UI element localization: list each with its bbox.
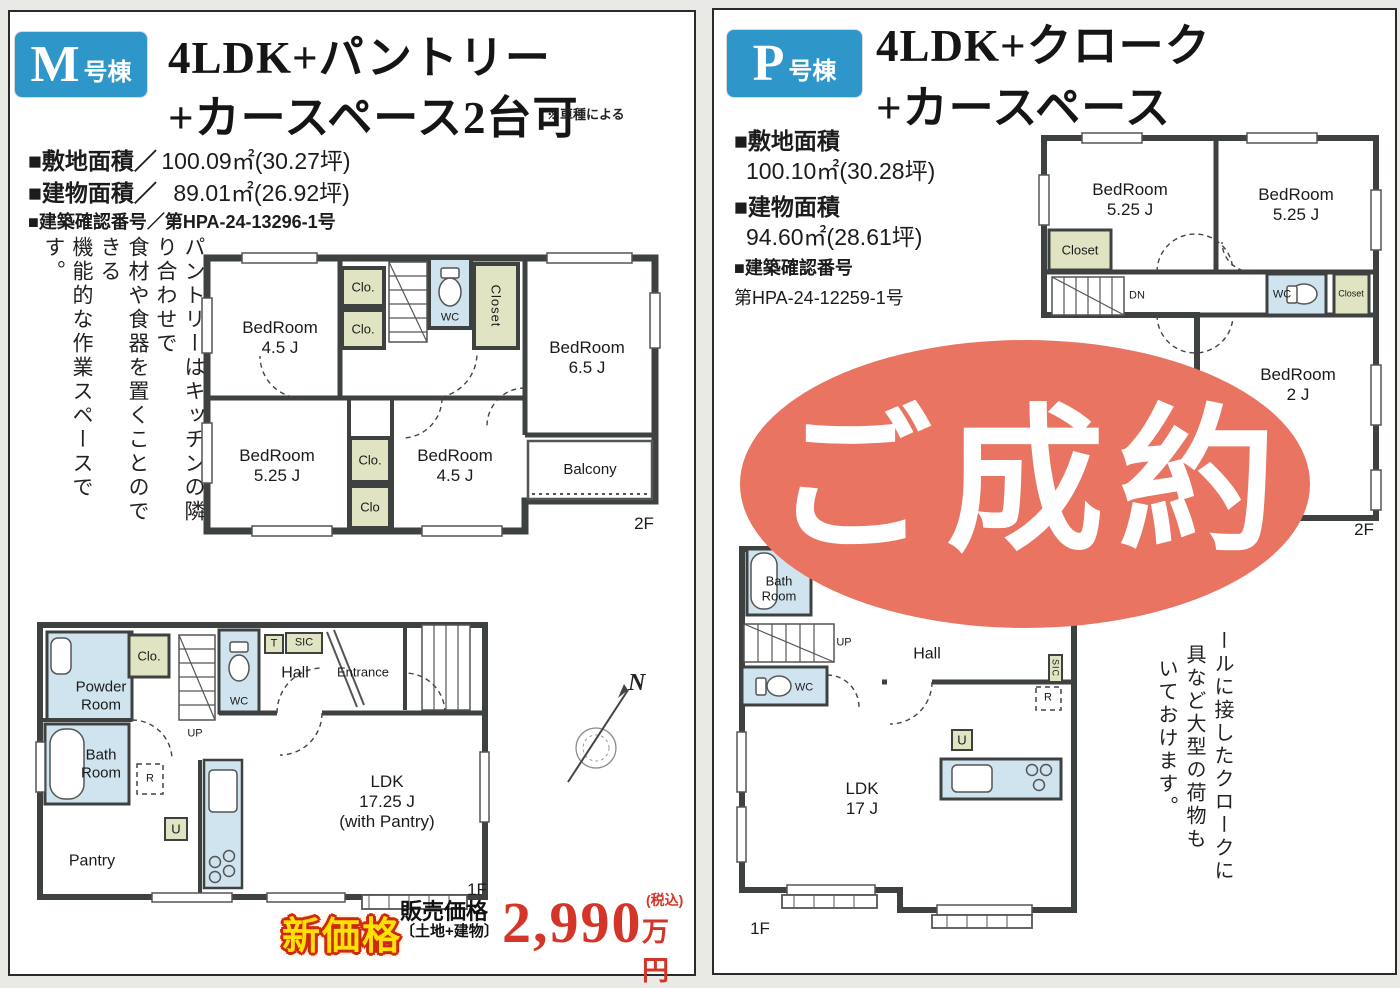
- room-label-balcony: Balcony: [563, 461, 616, 479]
- sic-label: SIC: [295, 637, 313, 650]
- vertical-text-col: 機能的な作業スペースです。: [40, 236, 96, 536]
- permit-number: ■建築確認番号／第HPA-24-13296-1号: [28, 212, 336, 232]
- price-caption: 販売価格 〔土地+建物〕: [400, 900, 499, 941]
- unit-m-badge: M 号棟: [15, 32, 147, 97]
- unit-p-badge: P 号棟: [727, 30, 862, 97]
- vertical-text-col: 食材や食器を置くことのできる: [96, 236, 152, 536]
- room-label-ldk: LDK 17.25 J (with Pantry): [339, 772, 434, 832]
- vertical-text-col: ールに接したクロークに: [1208, 630, 1236, 890]
- unit-suffix: 号棟: [84, 42, 132, 87]
- wc-room: [742, 667, 827, 705]
- room-label-closet: Closet: [488, 285, 503, 328]
- permit-row: ■建築確認番号／第HPA-24-13296-1号: [28, 208, 336, 234]
- unit-m-title-line1: 4LDK+パントリー: [168, 36, 551, 81]
- room-label-closet: Clo: [360, 499, 380, 514]
- site-area-value: 100.09㎡(30.27坪): [161, 148, 350, 174]
- floor-tag-2f: 2F: [1354, 520, 1374, 540]
- room-label-closet: Clo.: [137, 648, 160, 663]
- room-label-bath: Bath Room: [81, 746, 121, 781]
- sold-stamp: ご成約: [740, 340, 1310, 628]
- building-area-value: 89.01㎡(26.92坪): [161, 180, 349, 206]
- room-label-hall: Hall: [913, 646, 941, 665]
- room-label-closet: Clo.: [358, 452, 381, 467]
- u-label: U: [957, 732, 966, 747]
- bathtub-icon: [50, 729, 84, 799]
- building-area-label: ■建物面積／: [28, 180, 157, 206]
- room-label-wc: WC: [230, 696, 248, 709]
- stairs-up-label: UP: [187, 728, 202, 741]
- room-label-bedroom: BedRoom 4.5 J: [242, 318, 318, 358]
- building-area-row: ■建物面積: [734, 188, 840, 222]
- toilet-icon: [441, 268, 459, 278]
- stairs-down-label: DN: [1129, 290, 1145, 303]
- room-label-bedroom: BedRoom 5.25 J: [1258, 185, 1334, 225]
- toilet-icon: [229, 655, 249, 681]
- flyer-page: M 号棟 4LDK+パントリー +カースペース2台可 ※車種による ■敷地面積／…: [0, 0, 1400, 988]
- room-label-wc: WC: [1273, 289, 1291, 302]
- room-label-wc: WC: [795, 682, 813, 695]
- price-caption-line2: 〔土地+建物〕: [400, 924, 499, 941]
- compass-north-icon: N: [560, 662, 660, 792]
- unit-m-panel: M 号棟 4LDK+パントリー +カースペース2台可 ※車種による ■敷地面積／…: [8, 10, 696, 976]
- unit-letter: M: [30, 39, 79, 91]
- floor-plan-m-2f: BedRoom 4.5 J Clo. Clo. WC Closet BedRoo…: [192, 238, 657, 553]
- room-label-closet: Clo.: [351, 321, 374, 336]
- pantry-description-vertical-text: パントリーはキッチンの隣り合わせで 食材や食器を置くことのできる 機能的な作業ス…: [40, 236, 208, 536]
- room-label-powder: Powder Room: [76, 678, 127, 713]
- r-label: R: [1044, 692, 1052, 705]
- room-label-bedroom: BedRoom 4.5 J: [417, 446, 493, 486]
- compass-n-label: N: [628, 670, 645, 697]
- sold-stamp-text: ご成約: [760, 405, 1290, 563]
- new-price-badge: 新価格: [282, 905, 402, 960]
- unit-suffix: 号棟: [788, 41, 836, 86]
- room-label-bedroom: BedRoom 5.25 J: [1092, 180, 1168, 220]
- room-label-hall: Hall: [281, 665, 309, 684]
- room-label-bath: Bath Room: [762, 574, 797, 605]
- sink-icon: [952, 765, 992, 792]
- toilet-icon: [767, 676, 791, 696]
- room-label-closet: Clo.: [351, 279, 374, 294]
- sic-label: SIC: [1050, 659, 1061, 677]
- site-area-label: ■敷地面積: [734, 128, 840, 154]
- kitchen-counter: [204, 760, 242, 888]
- staircase: [389, 262, 427, 342]
- building-area-row: ■建物面積／ 89.01㎡(26.92坪): [28, 174, 350, 208]
- toilet-icon: [439, 278, 461, 306]
- u-label: U: [171, 821, 180, 836]
- permit-label: ■建築確認番号: [734, 258, 853, 278]
- staircase: [1052, 277, 1124, 315]
- t-label: T: [271, 638, 278, 651]
- floor-plan-m-2f-walls: [192, 238, 657, 553]
- room-label-bedroom: BedRoom 6.5 J: [549, 338, 625, 378]
- room-label-closet: Closet: [1338, 289, 1364, 300]
- unit-m-title-line2: +カースペース2台可: [168, 96, 579, 141]
- site-area-row: ■敷地面積／ 100.09㎡(30.27坪): [28, 142, 351, 176]
- porch-steps: [422, 625, 470, 710]
- room-label-pantry: Pantry: [69, 853, 115, 872]
- sink-icon: [209, 770, 237, 812]
- floor-plan-m-1f: Powder Room Clo. UP WC T SIC Hall Entran…: [37, 612, 492, 912]
- unit-p-panel: P 号棟 4LDK+クローク +カースペース ■敷地面積 100.10㎡(30.…: [712, 8, 1397, 975]
- floor-tag-2f: 2F: [634, 514, 654, 534]
- room-label-closet: Closet: [1062, 242, 1099, 257]
- vertical-text-col: いておけます。: [1152, 630, 1180, 890]
- site-area-label: ■敷地面積／: [28, 148, 157, 174]
- permit-value-row: 第HPA-24-12259-1号: [734, 284, 904, 310]
- staircase: [179, 635, 215, 720]
- room-label-entrance: Entrance: [337, 664, 389, 679]
- building-area-value-row: 94.60㎡(28.61坪): [746, 218, 922, 252]
- floor-tag-1f: 1F: [467, 880, 487, 900]
- kitchen-counter: [941, 759, 1061, 799]
- unit-letter: P: [753, 38, 785, 90]
- staircase: [744, 624, 834, 662]
- sink-icon: [51, 638, 71, 674]
- permit-number: 第HPA-24-12259-1号: [734, 288, 904, 308]
- r-label: R: [146, 773, 154, 786]
- cloak-description-vertical-text: ールに接したクロークに 具など大型の荷物も いておけます。: [1152, 630, 1236, 890]
- price-tax-note: (税込): [646, 890, 683, 910]
- toilet-icon: [756, 678, 766, 695]
- unit-p-title-line2: +カースペース: [876, 86, 1171, 131]
- room-label-wc: WC: [441, 312, 459, 325]
- site-area-row: ■敷地面積: [734, 122, 840, 156]
- permit-label-row: ■建築確認番号: [734, 254, 853, 280]
- unit-p-title-line1: 4LDK+クローク: [876, 24, 1211, 69]
- stairs-up-label: UP: [836, 637, 851, 650]
- site-area-value: 100.10㎡(30.28坪): [746, 158, 935, 184]
- building-area-value: 94.60㎡(28.61坪): [746, 224, 922, 250]
- floor-tag-1f: 1F: [750, 919, 770, 939]
- price-amount: 2,990: [502, 894, 643, 952]
- room-label-bedroom: BedRoom 5.25 J: [239, 446, 315, 486]
- building-area-label: ■建物面積: [734, 194, 840, 220]
- unit-m-title-note: ※車種による: [547, 104, 625, 123]
- toilet-icon: [230, 642, 248, 652]
- site-area-value-row: 100.10㎡(30.28坪): [746, 152, 935, 186]
- price-unit: 万円: [642, 910, 694, 988]
- vertical-text-col: 具など大型の荷物も: [1180, 630, 1208, 890]
- room-label-ldk: LDK 17 J: [845, 779, 878, 819]
- price-caption-line1: 販売価格: [400, 900, 499, 924]
